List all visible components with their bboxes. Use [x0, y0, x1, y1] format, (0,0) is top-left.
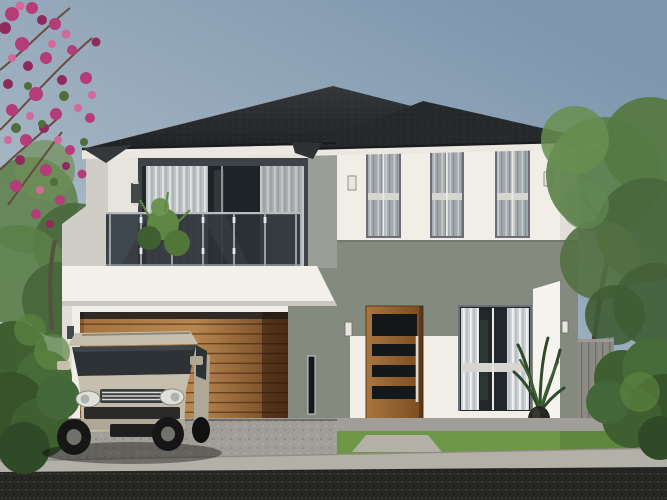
entry-white-strip-mid	[423, 336, 460, 432]
wall-sconce-upper-left	[348, 176, 356, 190]
entry-window	[458, 305, 532, 413]
wall-sconce-entry-corner	[562, 321, 568, 333]
balcony-glass-railing	[106, 212, 300, 268]
front-door-timber	[366, 306, 423, 426]
entry-white-strip-left	[350, 336, 366, 432]
wall-sconce-balcony	[131, 183, 140, 203]
door-glass-strip-1	[372, 344, 417, 356]
car-mirror-right	[190, 356, 203, 365]
upstairs-window-3	[495, 146, 530, 238]
door-glass-strip-2	[372, 365, 417, 377]
walkway	[352, 435, 442, 452]
asphalt-road	[0, 467, 667, 500]
upstairs-window-2	[430, 146, 464, 238]
door-glass-strip-3	[372, 386, 417, 399]
car-wheel-rear	[192, 417, 210, 443]
house-exterior-render	[0, 0, 667, 500]
car-mirror-left	[57, 361, 70, 370]
transom-window	[372, 314, 417, 336]
upstairs-window-1	[366, 146, 401, 238]
shaded-wall-strip	[308, 150, 337, 268]
slot-window	[308, 356, 315, 414]
wall-sconce-mid	[345, 322, 352, 336]
balcony-slab	[62, 266, 337, 306]
